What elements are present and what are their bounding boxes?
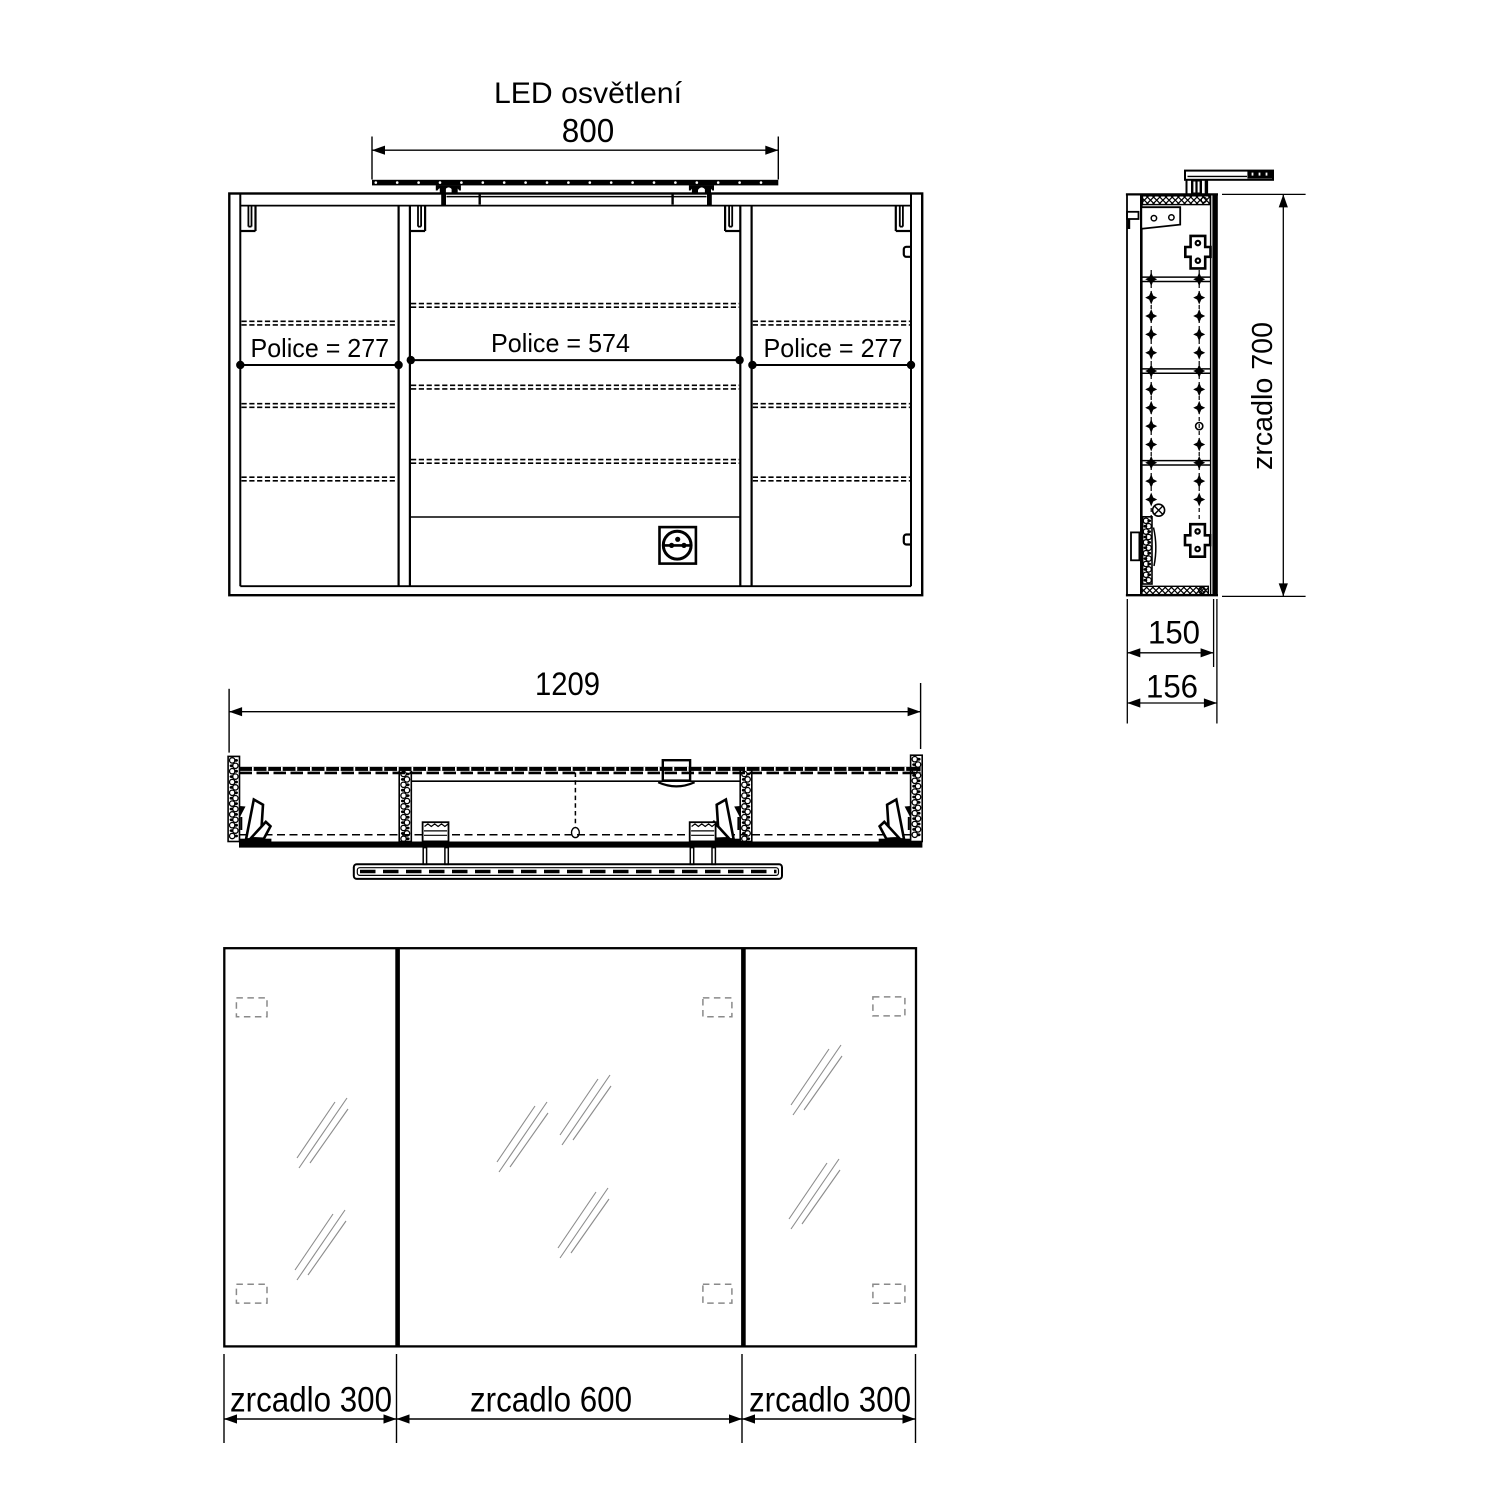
svg-text:Police = 277: Police = 277 xyxy=(764,333,903,363)
svg-text:zrcadlo 600: zrcadlo 600 xyxy=(470,1381,632,1420)
svg-text:800: 800 xyxy=(562,112,615,149)
svg-text:LED osvětlení: LED osvětlení xyxy=(494,77,683,110)
svg-text:1209: 1209 xyxy=(535,666,600,702)
svg-text:Police = 277: Police = 277 xyxy=(251,333,390,363)
svg-text:zrcadlo 300: zrcadlo 300 xyxy=(230,1381,392,1420)
svg-text:zrcadlo 300: zrcadlo 300 xyxy=(749,1381,911,1420)
svg-text:zrcadlo 700: zrcadlo 700 xyxy=(1247,322,1279,470)
svg-text:150: 150 xyxy=(1148,615,1200,651)
svg-text:Police = 574: Police = 574 xyxy=(491,328,630,358)
svg-text:156: 156 xyxy=(1146,669,1198,705)
